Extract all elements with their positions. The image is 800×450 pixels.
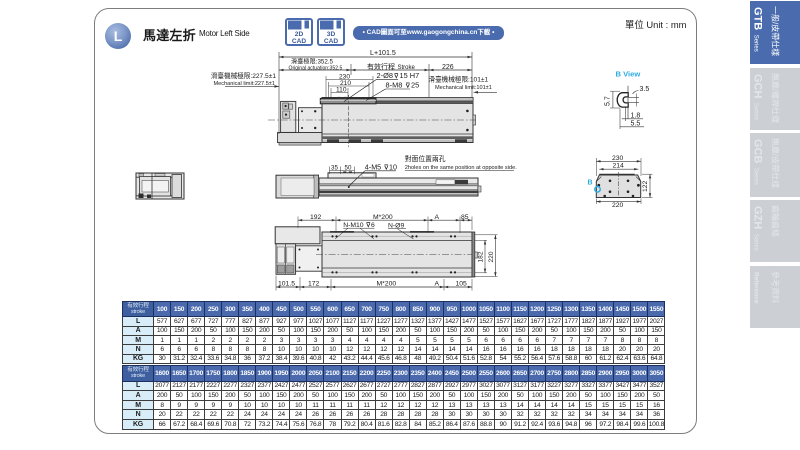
- svg-text:滑臺機械極限:227.5±1: 滑臺機械極限:227.5±1: [211, 71, 277, 80]
- svg-text:105: 105: [456, 280, 468, 287]
- svg-text:182: 182: [478, 251, 485, 262]
- svg-text:B View: B View: [616, 70, 641, 79]
- svg-text:滑臺機械極限:101±1: 滑臺機械極限:101±1: [429, 74, 489, 83]
- svg-text:192: 192: [310, 214, 322, 221]
- svg-text:15 H7: 15 H7: [400, 71, 420, 80]
- svg-text:Original actuation:352.5: Original actuation:352.5: [289, 65, 343, 71]
- svg-text:214: 214: [613, 163, 625, 170]
- svg-text:2-Ø8: 2-Ø8: [377, 71, 393, 80]
- svg-text:85: 85: [461, 214, 469, 221]
- svg-text:5.7: 5.7: [605, 96, 612, 106]
- svg-text:N-Ø9: N-Ø9: [388, 222, 404, 229]
- svg-text:101.5: 101.5: [278, 280, 295, 287]
- svg-text:220: 220: [488, 251, 495, 262]
- svg-text:Mechanical limit:101±1: Mechanical limit:101±1: [435, 85, 492, 91]
- svg-text:220: 220: [612, 202, 624, 209]
- svg-text:有效行程: 有效行程: [367, 62, 395, 71]
- svg-text:25: 25: [411, 81, 419, 90]
- svg-text:M*200: M*200: [373, 214, 393, 221]
- svg-text:8-M8: 8-M8: [386, 81, 403, 90]
- svg-text:對面位置兩孔: 對面位置兩孔: [405, 154, 446, 163]
- svg-text:122: 122: [642, 180, 649, 192]
- svg-text:4-M5: 4-M5: [365, 163, 381, 172]
- svg-text:172: 172: [308, 280, 320, 287]
- svg-text:50: 50: [345, 164, 352, 171]
- svg-text:230: 230: [612, 155, 624, 162]
- svg-text:110: 110: [336, 86, 347, 93]
- svg-text:10: 10: [389, 163, 397, 172]
- svg-text:35: 35: [331, 164, 338, 171]
- svg-text:B: B: [588, 180, 593, 187]
- svg-text:M*200: M*200: [377, 280, 397, 287]
- svg-text:L+101.5: L+101.5: [370, 49, 396, 57]
- svg-text:2holes on the same position at: 2holes on the same position at opposite …: [405, 165, 517, 171]
- svg-text:A: A: [435, 280, 440, 287]
- svg-text:226: 226: [442, 64, 454, 71]
- svg-text:A: A: [435, 214, 440, 221]
- svg-text:3.5: 3.5: [640, 86, 650, 93]
